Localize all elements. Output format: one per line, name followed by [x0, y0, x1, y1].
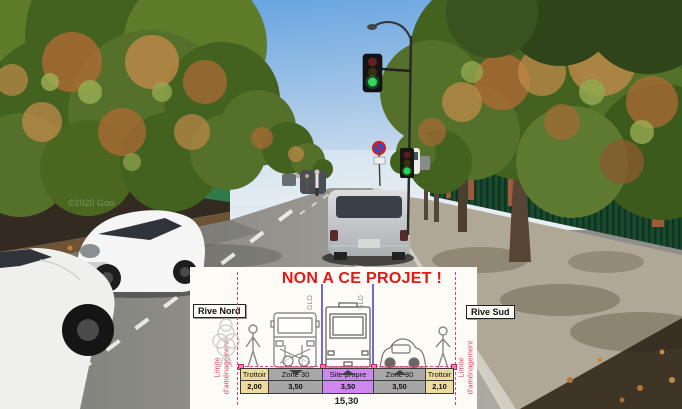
tree-canopy-right [380, 0, 682, 220]
cross-section-diagram: NON A CE PROJET ! Rive Nord Rive Sud Lim… [190, 267, 477, 409]
section-width: 3,50 [374, 380, 425, 393]
pedestrian-sketch-left [246, 325, 260, 367]
traffic-light-repeater [400, 148, 414, 178]
pedestrian-sketch-right [436, 327, 450, 368]
section-top-dashed-line [240, 366, 453, 367]
google-copyright-watermark: ©2020 Goo [68, 198, 114, 208]
section-label: Zone 30 [269, 369, 322, 380]
total-width-label: 15,30 [240, 396, 453, 407]
car-sketch [380, 339, 426, 368]
section-label: Site propre [323, 369, 373, 380]
section-width: 3,50 [323, 380, 373, 393]
direction-arrow-icon [393, 370, 407, 375]
section-site-propre: Site propre 3,50 [322, 368, 374, 394]
tree-sketch [213, 319, 239, 367]
section-width: 3,50 [269, 380, 322, 393]
section-zone30-south: Zone 30 3,50 [373, 368, 426, 394]
direction-arrow-icon [289, 370, 303, 375]
bus-sketch [271, 313, 319, 367]
section-label: Zone 30 [374, 369, 425, 380]
section-label: Trottoir [241, 369, 268, 380]
section-trottoir-south: Trottoir 2,10 [425, 368, 454, 394]
section-width: 2,00 [241, 380, 268, 393]
section-zone30-north: Zone 30 3,50 [268, 368, 323, 394]
section-trottoir-north: Trottoir 2,00 [240, 368, 269, 394]
minivan [322, 190, 414, 266]
direction-arrow-icon [341, 370, 355, 375]
section-label: Trottoir [426, 369, 453, 380]
tram-sketch [326, 303, 370, 367]
screenshot-stage: evard Ga [0, 0, 682, 409]
section-width: 2,10 [426, 380, 453, 393]
